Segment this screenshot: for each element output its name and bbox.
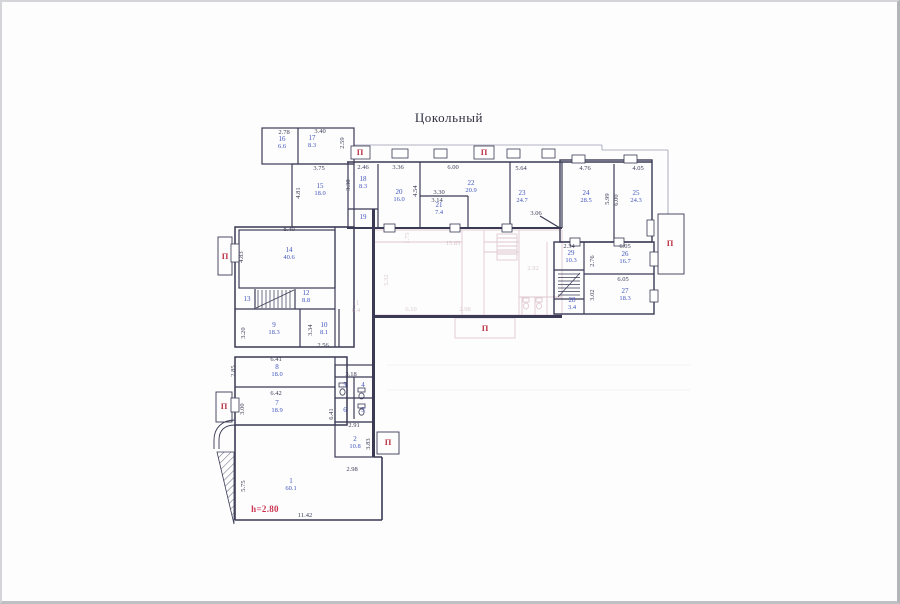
room-number: 19 [360,213,367,221]
room-number: 1 [285,477,296,485]
porch-marker: П [221,402,228,411]
dimension-label: 6.41 [329,408,336,419]
room-label-7: 718.9 [271,399,282,415]
room-number: 18 [359,175,367,183]
room-number: 23 [516,189,527,197]
room-label-15: 1518.0 [314,182,325,198]
room-area: 3.4 [568,304,576,312]
room-label-9: 918.3 [268,321,279,337]
room-area: 8.4 [352,307,360,315]
room-area: 10.8 [349,443,360,451]
room-number: 22 [465,179,476,187]
dimension-label: 4.05 [632,166,643,173]
room-label-29: 2910.3 [565,249,576,265]
dimension-label: 3.02 [590,289,597,300]
room-number: 24 [580,189,591,197]
room-number: 4 [361,381,365,389]
room-label-13: 13 [244,295,251,303]
dimension-label: 3.83 [366,438,373,449]
room-label-14: 1440.6 [283,246,294,262]
room-area: 8.8 [302,297,310,305]
dimension-label: 3.00 [240,403,247,414]
room-number: 2 [349,435,360,443]
porch-marker: П [385,438,392,447]
room-number: 25 [630,189,641,197]
porch-marker: П [222,252,229,261]
dimension-label: 4.83 [239,251,246,262]
ceiling-height-note: h=2.80 [251,504,279,514]
room-number: 26 [619,250,630,258]
room-number: 21 [435,201,443,209]
room-label-12: 128.8 [302,289,310,305]
room-number: 10 [320,321,328,329]
room-label-23: 2324.7 [516,189,527,205]
room-number: 17 [308,134,316,142]
labels-layer: Цокольный h=2.80 2.783.402.593.754.812.4… [2,2,900,604]
dimension-label: 1.75 [405,232,412,243]
room-area: 18.0 [314,190,325,198]
room-label-18: 188.3 [359,175,367,191]
basement-floor-plan: Цокольный h=2.80 2.783.402.593.754.812.4… [2,2,900,604]
room-area: 40.6 [283,254,294,262]
room-label-27: 2718.3 [619,287,630,303]
room-area: 10.3 [565,257,576,265]
room-label-6: 6 [343,406,347,414]
room-area: 8.3 [308,142,316,150]
room-number: 20 [393,188,404,196]
dimension-label: 4.76 [579,166,590,173]
porch-marker: П [482,324,489,333]
dimension-label: 5.99 [605,193,612,204]
room-label-28: 283.4 [568,296,576,312]
dimension-label: 2.91 [348,423,359,430]
room-label-4: 4 [361,381,365,389]
dimension-label: 2.98 [346,467,357,474]
room-area: 6.6 [278,143,286,151]
room-number: 5 [343,381,347,389]
room-label-2: 210.8 [349,435,360,451]
room-area: 8.1 [320,329,328,337]
dimension-label: 3.18 [345,372,356,379]
room-number: 13 [244,295,251,303]
room-number: 27 [619,287,630,295]
dimension-label: 3.30 [433,190,444,197]
dimension-label: 3.06 [530,211,541,218]
room-label-10: 108.1 [320,321,328,337]
dimension-label: 5.64 [515,166,526,173]
porch-marker: П [481,148,488,157]
dimension-label: 6.42 [270,391,281,398]
room-number: 8 [271,363,282,371]
porch-marker: П [357,148,364,157]
dimension-label: 2.59 [340,137,347,148]
room-label-3: 3 [361,406,365,414]
room-area: 16.7 [619,258,630,266]
room-area: 18.3 [619,295,630,303]
dimension-label: 3.34 [308,324,315,335]
room-number: 12 [302,289,310,297]
dimension-label: 2.85 [231,365,238,376]
dimension-label: 8.40 [283,227,294,234]
dimension-label: 4.81 [296,187,303,198]
room-label-21: 217.4 [435,201,443,217]
room-area: 16.0 [393,196,404,204]
room-number: 11 [352,299,360,307]
dimension-label: 2.56 [317,343,328,350]
porch-marker: П [667,239,674,248]
dimension-label: 2.76 [590,255,597,266]
room-label-5: 5 [343,381,347,389]
dimension-label: 2.92 [527,266,538,273]
scanned-page: Цокольный h=2.80 2.783.402.593.754.812.4… [0,0,900,604]
dimension-label: 3.36 [392,165,403,172]
room-label-8: 818.0 [271,363,282,379]
room-number: 14 [283,246,294,254]
room-label-24: 2428.5 [580,189,591,205]
room-area: 60.1 [285,485,296,493]
room-label-17: 178.3 [308,134,316,150]
room-label-20: 2016.0 [393,188,404,204]
dimension-label: 5.75 [241,480,248,491]
dimension-label: 6.00 [447,165,458,172]
room-label-16: 166.6 [278,135,286,151]
room-area: 7.4 [435,209,443,217]
room-label-19: 19 [360,213,367,221]
dimension-label: 6.05 [617,277,628,284]
room-label-26: 2616.7 [619,250,630,266]
dimension-label: 4.54 [413,185,420,196]
room-number: 6 [343,406,347,414]
room-number: 15 [314,182,325,190]
room-label-11: 118.4 [352,299,360,315]
room-number: 3 [361,406,365,414]
plan-title: Цокольный [415,110,483,126]
room-area: 18.0 [271,371,282,379]
room-number: 29 [565,249,576,257]
dimension-label: 3.20 [241,327,248,338]
dimension-label: 3.38 [346,179,353,190]
room-area: 28.5 [580,197,591,205]
dimension-label: 2.46 [357,165,368,172]
dimension-label: 6.00 [614,194,621,205]
dimension-label: 15.85 [446,241,461,248]
room-number: 28 [568,296,576,304]
room-area: 24.3 [630,197,641,205]
dimension-label: 6.10 [405,307,416,314]
room-area: 18.9 [271,407,282,415]
room-label-25: 2524.3 [630,189,641,205]
room-number: 7 [271,399,282,407]
dimension-label: 5.32 [384,274,391,285]
room-area: 20.9 [465,187,476,195]
room-area: 18.3 [268,329,279,337]
dimension-label: 11.42 [298,513,312,520]
room-area: 8.3 [359,183,367,191]
room-area: 24.7 [516,197,527,205]
room-number: 9 [268,321,279,329]
dimension-label: 2.98 [459,307,470,314]
room-number: 16 [278,135,286,143]
room-label-22: 2220.9 [465,179,476,195]
room-label-1: 160.1 [285,477,296,493]
dimension-label: 3.75 [313,166,324,173]
